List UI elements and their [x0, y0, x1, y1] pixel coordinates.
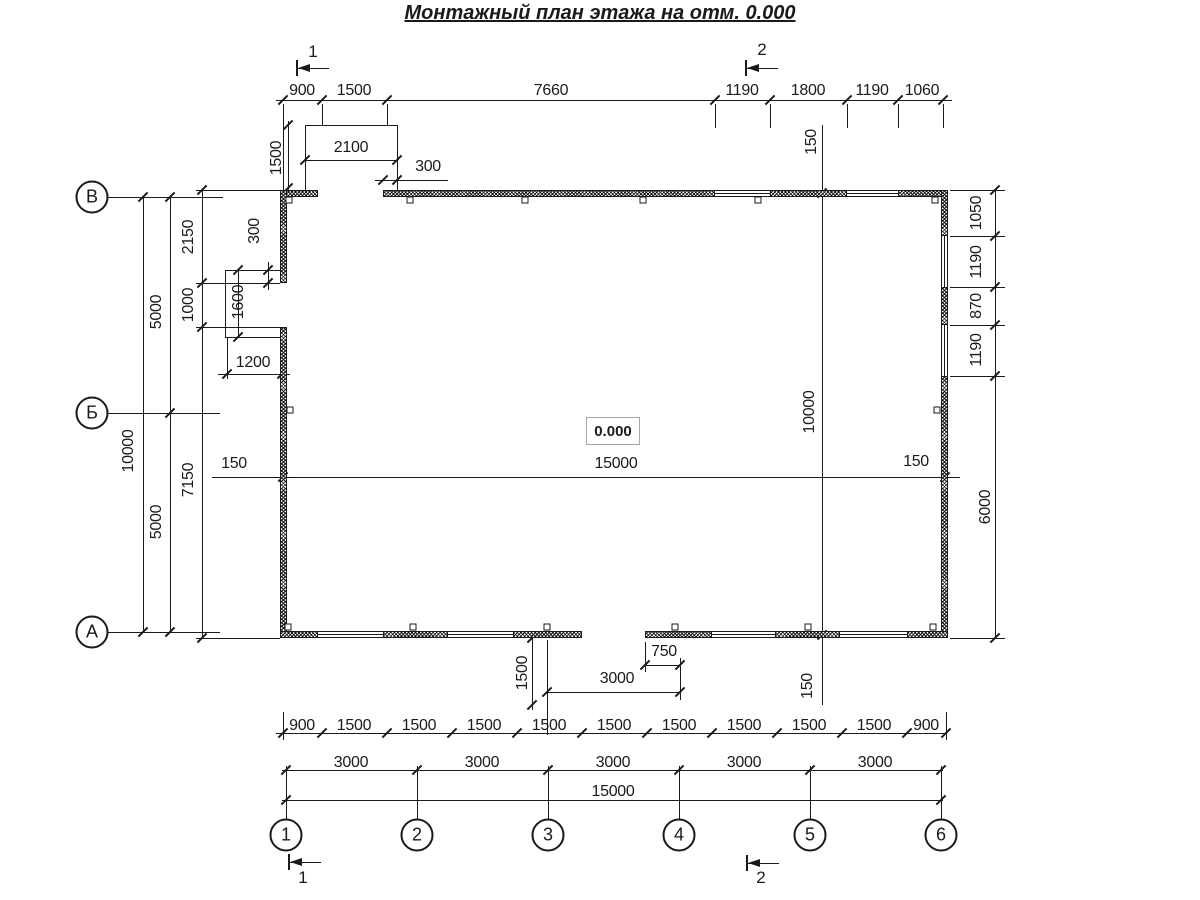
dimension-line	[322, 104, 323, 126]
section-mark-label: 1	[298, 868, 307, 888]
window-opening	[715, 190, 770, 197]
wall-panel	[383, 631, 448, 638]
dimension-line	[950, 190, 1005, 191]
dimension-line	[276, 100, 952, 101]
dim-right-chain-1: 1190	[969, 245, 985, 278]
dimension-line	[417, 766, 418, 819]
dim-left-porch-0: 300	[247, 218, 263, 244]
dimension-line	[950, 287, 1005, 288]
window-opening	[941, 325, 948, 376]
dim-left-chain-0: 2150	[181, 220, 197, 254]
dim-top-chain-3: 1190	[725, 83, 758, 99]
dim-bottom-chain-detail-4: 1500	[532, 718, 566, 734]
wall-panel	[907, 631, 948, 638]
wall-panel	[941, 287, 948, 325]
dimension-line	[196, 190, 280, 191]
wall-panel	[770, 190, 847, 197]
embedded-part-mark	[410, 624, 417, 631]
dimension-line	[950, 325, 1005, 326]
embedded-part-mark	[285, 624, 292, 631]
dim-bottom-chain-detail-3: 1500	[467, 718, 501, 734]
dimension-line	[898, 104, 899, 128]
wall-panel	[513, 631, 582, 638]
dim-right-chain-3: 1190	[969, 333, 985, 366]
axis-bubble-6: 6	[925, 819, 958, 852]
embedded-part-mark	[934, 407, 941, 414]
dimension-line	[375, 180, 448, 181]
section-mark-label: 2	[757, 40, 766, 60]
dimension-line	[950, 376, 1005, 377]
wall-panel	[280, 190, 287, 283]
dimension-line	[946, 712, 947, 740]
window-opening	[448, 631, 513, 638]
dim-bottom-chain-detail-0: 900	[289, 718, 315, 734]
dim-bottom-chain-axes-3: 3000	[727, 755, 761, 771]
dim-bottom-chain-detail-1: 1500	[337, 718, 371, 734]
dim-bottom-chain-detail-10: 900	[913, 718, 939, 734]
dimension-line	[225, 337, 280, 338]
dim-top-porch-1: 2100	[334, 140, 368, 156]
dim-right-chain-0: 1050	[969, 196, 985, 230]
elevation-value: 0.000	[594, 423, 632, 440]
dim-bottom-chain-axes-0: 3000	[334, 755, 368, 771]
axis-bubble-А: А	[76, 616, 109, 649]
axis-bubble-В: В	[76, 181, 109, 214]
dimension-line	[822, 125, 823, 705]
dim-interior-height-1: 10000	[802, 391, 818, 434]
axis-bubble-2: 2	[401, 819, 434, 852]
dim-left-axes-1: 5000	[149, 505, 165, 539]
dim-bottom-chain-axes-2: 3000	[596, 755, 630, 771]
dimension-line	[108, 197, 223, 198]
embedded-part-mark	[805, 624, 812, 631]
window-opening	[318, 631, 383, 638]
window-opening	[712, 631, 775, 638]
dim-right-chain-4: 6000	[978, 490, 994, 524]
dim-bottom-chain-axes-4: 3000	[858, 755, 892, 771]
embedded-part-mark	[407, 197, 414, 204]
dim-bottom-porch-0: 1500	[515, 656, 531, 690]
window-opening	[847, 190, 898, 197]
dim-bottom-chain-detail-8: 1500	[792, 718, 826, 734]
dimension-line	[715, 104, 716, 128]
dim-bottom-chain-detail-6: 1500	[662, 718, 696, 734]
dimension-line	[950, 236, 1005, 237]
dim-bottom-chain-axes-1: 3000	[465, 755, 499, 771]
section-mark-label: 2	[756, 868, 765, 888]
axis-bubble-5: 5	[794, 819, 827, 852]
dim-left-chain-1: 1000	[181, 288, 197, 322]
dim-top-porch-0: 1500	[269, 141, 285, 175]
dim-interior-height-2: 150	[800, 673, 816, 699]
dimension-line	[282, 800, 943, 801]
dimension-line	[532, 638, 533, 710]
dim-bottom-porch-2: 750	[651, 644, 677, 660]
dimension-line	[305, 160, 397, 161]
dim-interior-width-2: 150	[903, 454, 929, 470]
dimension-line	[645, 642, 646, 672]
embedded-part-mark	[640, 197, 647, 204]
dim-bottom-total-0: 15000	[592, 784, 635, 800]
dim-bottom-chain-detail-2: 1500	[402, 718, 436, 734]
wall-panel	[383, 190, 715, 197]
section-arrow-icon	[290, 858, 302, 866]
dimension-line	[995, 190, 996, 638]
embedded-part-mark	[932, 197, 939, 204]
dim-top-chain-4: 1800	[791, 83, 825, 99]
dim-left-chain-2: 7150	[181, 463, 197, 497]
dim-top-porch-2: 300	[415, 159, 441, 175]
axis-bubble-4: 4	[663, 819, 696, 852]
dim-top-chain-5: 1190	[855, 83, 888, 99]
dimension-line	[108, 632, 220, 633]
dim-top-chain-1: 1500	[337, 83, 371, 99]
section-arrow-icon	[747, 64, 759, 72]
dimension-line	[225, 270, 226, 337]
dimension-line	[225, 270, 280, 271]
dim-right-chain-2: 870	[969, 293, 985, 319]
dim-left-porch-1: 1600	[231, 285, 247, 319]
dim-top-chain-0: 900	[289, 83, 315, 99]
dimension-line	[847, 104, 848, 128]
dim-interior-height-0: 150	[804, 129, 820, 155]
axis-bubble-3: 3	[532, 819, 565, 852]
wall-panel	[645, 631, 712, 638]
dim-interior-width-1: 15000	[595, 456, 638, 472]
dim-top-chain-2: 7660	[534, 83, 568, 99]
dimension-line	[679, 766, 680, 819]
window-opening	[840, 631, 907, 638]
section-mark-label: 1	[308, 42, 317, 62]
dimension-line	[810, 766, 811, 819]
wall-panel	[775, 631, 840, 638]
dimension-line	[108, 413, 220, 414]
dim-left-axes-0: 5000	[149, 295, 165, 329]
dimension-line	[143, 197, 144, 632]
dimension-line	[196, 638, 280, 639]
axis-bubble-1: 1	[270, 819, 303, 852]
dimension-line	[547, 692, 680, 693]
dim-left-porch-2: 1200	[236, 355, 270, 371]
embedded-part-mark	[544, 624, 551, 631]
dimension-line	[305, 125, 397, 126]
elevation-mark: 0.000	[586, 417, 640, 445]
wall-panel	[280, 327, 287, 638]
dimension-line	[943, 104, 944, 128]
dimension-line	[288, 121, 289, 190]
dimension-line	[283, 712, 284, 740]
dimension-line	[645, 665, 680, 666]
dimension-line	[770, 104, 771, 128]
embedded-part-mark	[755, 197, 762, 204]
dim-bottom-chain-detail-9: 1500	[857, 718, 891, 734]
dimension-line	[941, 766, 942, 819]
embedded-part-mark	[286, 197, 293, 204]
section-arrow-icon	[298, 64, 310, 72]
wall-panel	[280, 631, 318, 638]
floor-plan-canvas: Монтажный план этажа на отм. 0.000 0.000…	[0, 0, 1200, 900]
drawing-title: Монтажный план этажа на отм. 0.000	[0, 2, 1200, 25]
embedded-part-mark	[287, 407, 294, 414]
embedded-part-mark	[522, 197, 529, 204]
axis-bubble-Б: Б	[76, 397, 109, 430]
window-opening	[941, 236, 948, 287]
dim-bottom-chain-detail-7: 1500	[727, 718, 761, 734]
dim-left-total-0: 10000	[121, 430, 137, 473]
dim-interior-width-0: 150	[221, 456, 247, 472]
dimension-line	[286, 766, 287, 819]
wall-panel	[941, 190, 948, 236]
dimension-line	[548, 766, 549, 819]
dim-top-chain-6: 1060	[905, 83, 939, 99]
embedded-part-mark	[930, 624, 937, 631]
dimension-line	[950, 638, 1005, 639]
dimension-line	[170, 197, 171, 632]
dim-bottom-chain-detail-5: 1500	[597, 718, 631, 734]
dimension-line	[212, 477, 960, 478]
dim-bottom-porch-1: 3000	[600, 671, 634, 687]
section-arrow-icon	[748, 859, 760, 867]
dimension-line	[387, 104, 388, 126]
dimension-line	[202, 190, 203, 638]
embedded-part-mark	[672, 624, 679, 631]
wall-panel	[941, 376, 948, 638]
